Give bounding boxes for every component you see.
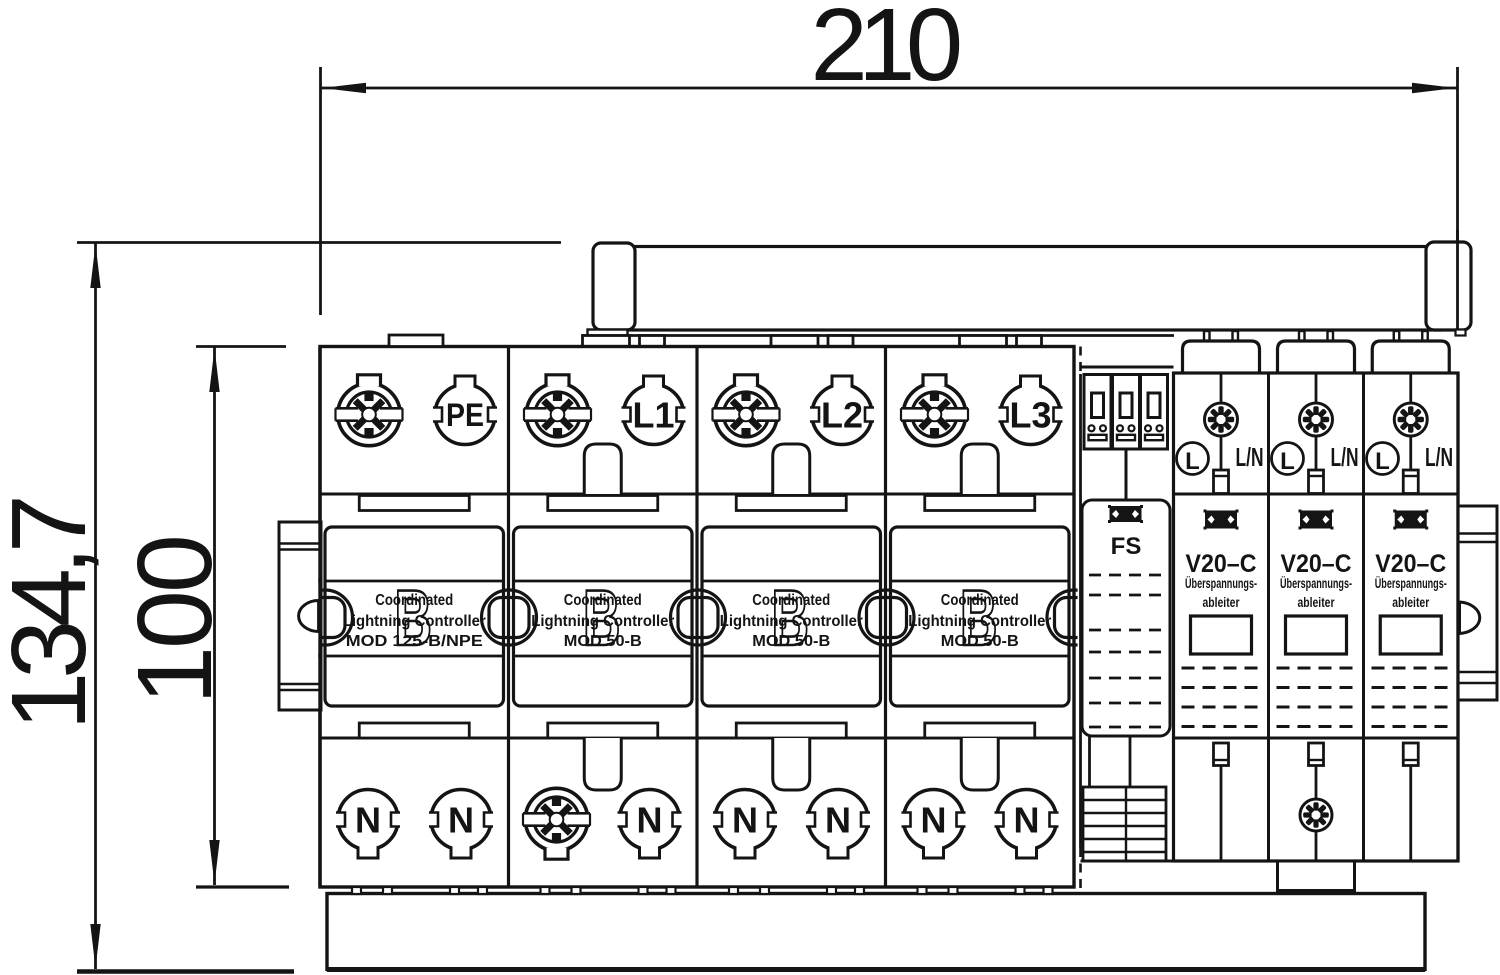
svg-text:V20–C: V20–C [1281,550,1352,578]
svg-text:L: L [1280,448,1295,475]
svg-text:N: N [637,799,663,840]
svg-text:Lightning Controller: Lightning Controller [720,613,863,630]
svg-text:V20–C: V20–C [1186,550,1257,578]
svg-text:N: N [921,799,947,840]
svg-text:N: N [355,799,381,840]
svg-text:L2: L2 [821,394,863,435]
svg-text:MOD 125-B/NPE: MOD 125-B/NPE [346,633,483,650]
svg-text:210: 210 [810,0,959,102]
svg-text:N: N [825,799,851,840]
svg-text:L/N: L/N [1425,442,1453,472]
svg-text:L1: L1 [632,394,674,435]
svg-text:Lightning Controller: Lightning Controller [531,613,674,630]
svg-text:100: 100 [116,537,234,705]
svg-text:PE: PE [446,397,484,433]
svg-text:ableiter: ableiter [1392,594,1429,610]
svg-text:FS: FS [1111,533,1142,560]
svg-text:Coordinated: Coordinated [941,592,1019,609]
svg-text:L: L [1185,448,1200,475]
svg-text:N: N [448,799,474,840]
svg-text:V20–C: V20–C [1375,550,1446,578]
svg-text:Coordinated: Coordinated [564,592,642,609]
svg-text:Überspannungs-: Überspannungs- [1185,575,1257,591]
svg-text:MOD 50-B: MOD 50-B [941,633,1019,650]
svg-text:L/N: L/N [1331,442,1359,472]
svg-text:Überspannungs-: Überspannungs- [1375,575,1447,591]
svg-text:Coordinated: Coordinated [752,592,830,609]
svg-text:N: N [1014,799,1040,840]
svg-text:Überspannungs-: Überspannungs- [1280,575,1352,591]
svg-text:ableiter: ableiter [1203,594,1240,610]
svg-text:134,7: 134,7 [0,499,108,731]
svg-text:MOD 50-B: MOD 50-B [564,633,642,650]
svg-text:L/N: L/N [1236,442,1264,472]
svg-text:Coordinated: Coordinated [375,592,453,609]
svg-text:ableiter: ableiter [1298,594,1335,610]
svg-text:L3: L3 [1009,394,1051,435]
svg-text:L: L [1375,448,1390,475]
svg-text:MOD 50-B: MOD 50-B [752,633,830,650]
svg-text:N: N [732,799,758,840]
svg-text:Lightning Controller: Lightning Controller [343,613,486,630]
svg-text:Lightning Controller: Lightning Controller [908,613,1051,630]
